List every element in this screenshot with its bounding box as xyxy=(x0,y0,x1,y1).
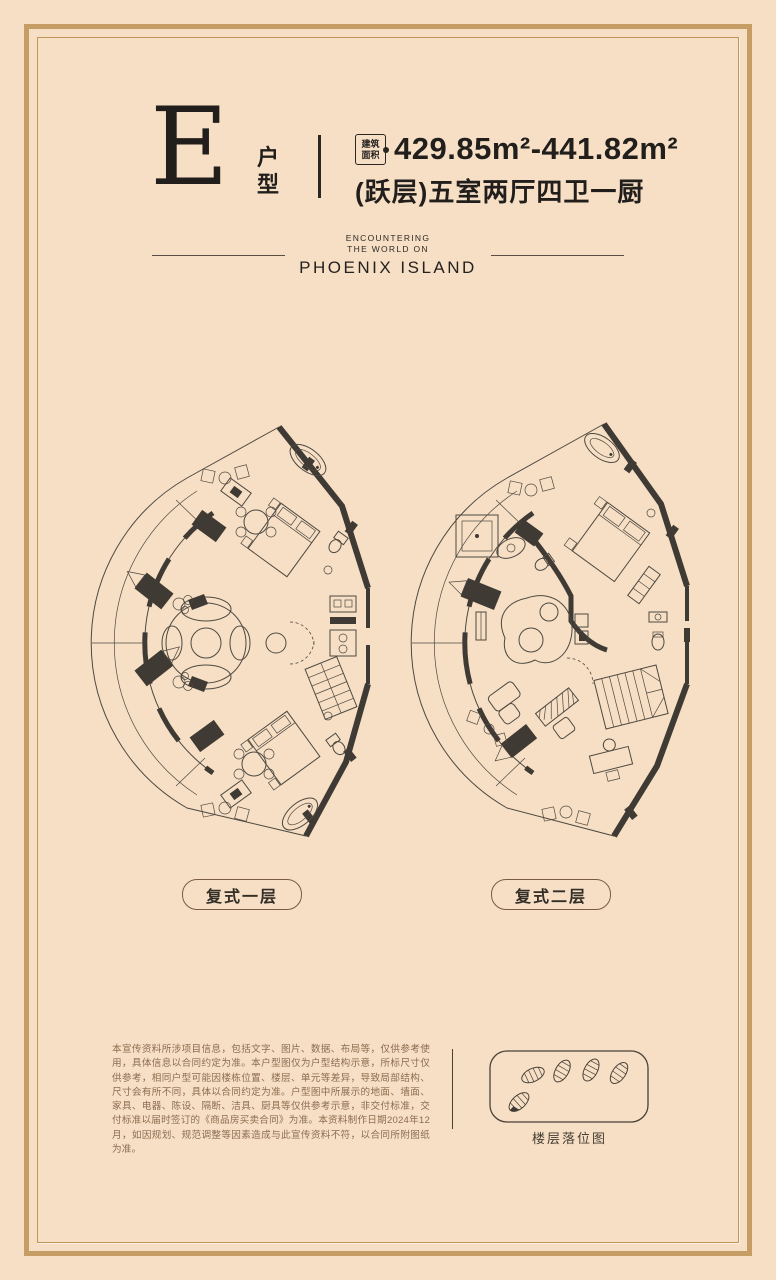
dining-table xyxy=(236,507,276,537)
brand-tagline-2: THE WORLD ON xyxy=(299,244,477,255)
unit-info-block: 建筑 面积 429.85m²-441.82m² (跃层)五室两厅四卫一厨 xyxy=(355,131,678,209)
header-divider-line xyxy=(318,135,321,198)
plan-label-level2: 复式二层 xyxy=(491,879,611,910)
floor-area-badge: 建筑 面积 xyxy=(355,134,386,165)
brand-tagline-1: ENCOUNTERING xyxy=(299,233,477,244)
dining-table xyxy=(234,749,274,779)
kitchen-counter xyxy=(330,596,356,656)
wall-pier xyxy=(190,720,225,752)
bathroom xyxy=(649,612,667,650)
door-swing xyxy=(290,640,314,664)
layout-description: (跃层)五室两厅四卫一厨 xyxy=(355,172,678,209)
brand-name: PHOENIX ISLAND xyxy=(299,258,477,278)
stairs xyxy=(305,657,357,720)
desk xyxy=(587,735,636,784)
balcony-set xyxy=(201,465,249,484)
unit-label-char-2: 型 xyxy=(257,171,279,198)
sconce xyxy=(647,509,655,517)
wall-pier xyxy=(684,628,690,642)
toilet xyxy=(326,531,348,555)
wall-pier xyxy=(446,572,502,610)
door-swing xyxy=(567,658,593,684)
building-footprint xyxy=(607,1059,631,1086)
building-footprint xyxy=(580,1056,603,1083)
bed xyxy=(564,497,649,582)
bed xyxy=(241,711,320,790)
brand-text: ENCOUNTERING THE WORLD ON PHOENIX ISLAND xyxy=(285,233,491,278)
area-row: 建筑 面积 429.85m²-441.82m² xyxy=(355,131,678,167)
balcony-set xyxy=(201,802,249,821)
steam-room xyxy=(456,515,498,557)
badge-line-1: 建筑 xyxy=(361,139,379,150)
brand-rule-right xyxy=(491,255,624,256)
building-footprint-highlighted xyxy=(506,1089,533,1115)
brand-block: ENCOUNTERING THE WORLD ON PHOENIX ISLAND xyxy=(152,233,624,278)
stairs xyxy=(594,665,668,729)
area-range-value: 429.85m²-441.82m² xyxy=(394,131,678,167)
brand-rule-left xyxy=(152,255,285,256)
wardrobe xyxy=(628,566,660,603)
badge-dot-icon xyxy=(383,147,389,153)
closet-hatched xyxy=(536,688,579,726)
footer-divider-line xyxy=(452,1049,453,1129)
plan-label-level1: 复式一层 xyxy=(182,879,302,910)
unit-type-label: 户 型 xyxy=(257,144,279,198)
wall-pier xyxy=(134,640,186,687)
sofa xyxy=(487,680,531,725)
hall-table xyxy=(266,633,286,653)
console xyxy=(221,780,251,808)
door-swing xyxy=(290,622,314,646)
balcony-set xyxy=(542,806,590,825)
unit-type-letter: E xyxy=(150,94,227,202)
armchair xyxy=(552,716,576,740)
bed xyxy=(241,498,320,577)
building-footprint xyxy=(519,1064,546,1086)
building-footprint xyxy=(550,1057,573,1084)
building-location-diagram xyxy=(489,1050,650,1124)
poster-page: E 户 型 建筑 面积 429.85m²-441.82m² (跃层)五室两厅四卫… xyxy=(0,0,776,1280)
unit-label-char-1: 户 xyxy=(257,144,279,171)
balcony-set xyxy=(508,477,554,496)
badge-line-2: 面积 xyxy=(361,150,379,161)
toilet xyxy=(326,733,348,757)
console xyxy=(221,478,251,506)
disclaimer-text: 本宣传资料所涉项目信息，包括文字、图片、数据、布局等，仅供参考使用，具体信息以合… xyxy=(112,1043,430,1157)
sconce xyxy=(324,566,332,574)
floor-plan-level1 xyxy=(84,418,395,870)
location-diagram-caption: 楼层落位图 xyxy=(489,1128,650,1147)
floor-plan-level2 xyxy=(399,416,715,873)
